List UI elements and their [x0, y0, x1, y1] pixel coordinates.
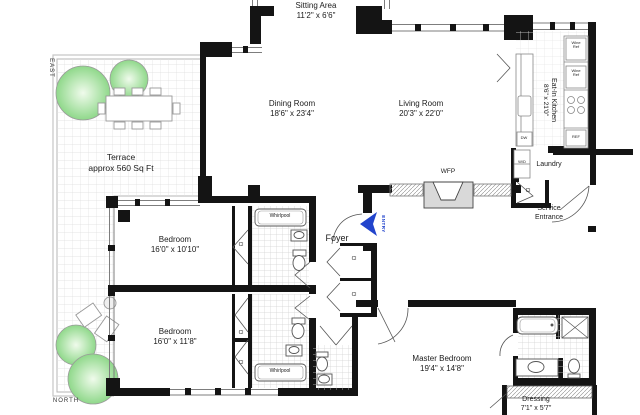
- master-bedroom-label: Master Bedroom19'4" x 14'8": [412, 354, 471, 374]
- compass-north-label: NORTH: [53, 398, 79, 406]
- bedroom1-label: Bedroom16'0" x 10'10": [151, 235, 199, 255]
- whirlpool-tub-label-1: Whirlpool: [270, 213, 291, 219]
- closet-label-bedroom2-a: Cl: [239, 330, 244, 336]
- entry-label: ENTRY: [380, 215, 386, 233]
- closet-label-laundry: Cl: [526, 188, 531, 194]
- whirlpool-tub-label-2: Whirlpool: [270, 368, 291, 374]
- refrigerator-label: REF: [572, 135, 580, 139]
- dishwasher-label: DW: [521, 136, 528, 140]
- dressing-label: Dressing7'1" x 5'7": [521, 396, 552, 414]
- closet-label-foyer-b: Cl: [352, 292, 357, 298]
- closet-label-bedroom1: Cl: [239, 242, 244, 248]
- compass-east-label: EAST: [46, 58, 54, 78]
- entry-arrow-icon: [360, 212, 377, 236]
- fireplace: [424, 182, 473, 208]
- dining-room-label: Dining Room18'6" x 23'4": [269, 99, 315, 119]
- wine-ref-label-2: WineRef: [571, 69, 580, 78]
- closet-label-foyer-a: Cl: [352, 256, 357, 262]
- living-room-label: Living Room20'3" x 22'0": [399, 99, 443, 119]
- foyer-label: Foyer: [325, 233, 348, 244]
- eat-in-kitchen-label: Eat-In Kitchen 8'6" x 21'0": [540, 78, 558, 122]
- floor-plan-page: Sitting Area11'2" x 6'6" Dining Room18'6…: [0, 0, 640, 415]
- washer-dryer-label: W/D: [518, 160, 526, 164]
- sitting-area-label: Sitting Area11'2" x 6'6": [296, 1, 337, 21]
- service-entrance-label: ServiceEntrance: [535, 205, 563, 223]
- closet-label-bedroom2-b: Cl: [239, 360, 244, 366]
- terrace-label: Terraceapprox 560 Sq Ft: [88, 152, 153, 173]
- bedroom2-label: Bedroom16'0" x 11'8": [153, 327, 196, 347]
- laundry-label: Laundry: [536, 161, 561, 170]
- wine-ref-label-1: WineRef: [571, 41, 580, 50]
- wfp-fireplace-label: WFP: [441, 168, 455, 176]
